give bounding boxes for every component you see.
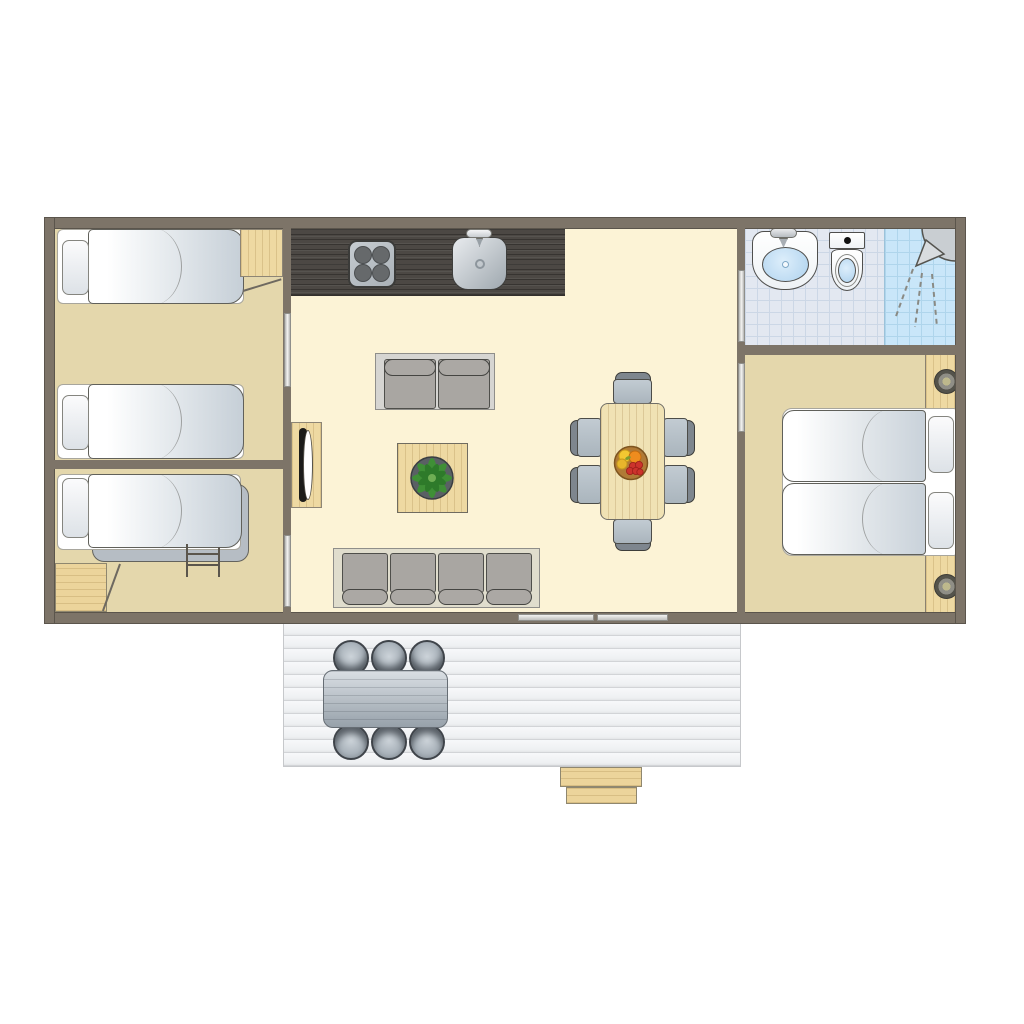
bed-pillow <box>62 478 89 538</box>
sofa-back-pillow <box>486 589 532 605</box>
potted-plant <box>405 451 460 506</box>
sofa-cushion <box>390 553 436 593</box>
toilet-cistern <box>829 232 865 249</box>
double-bed-mattress <box>782 483 926 555</box>
bed-pillow <box>928 416 954 473</box>
sofa-back-pillow <box>384 359 436 376</box>
four-seat-sofa <box>333 548 540 608</box>
sliding-door-bedroom-left-bottom <box>284 535 291 607</box>
sink-faucet <box>466 229 492 238</box>
fruit-bowl <box>613 445 649 481</box>
stove-burner <box>354 264 372 282</box>
stove-burner <box>372 264 390 282</box>
deck-step-upper <box>560 767 642 787</box>
sofa-back-pillow <box>438 359 490 376</box>
bunk-bed-duvet <box>88 474 242 548</box>
double-bed-mattress <box>782 410 926 482</box>
patio-sliding-door-panel <box>518 614 594 621</box>
sliding-door-bathroom <box>738 270 745 342</box>
stove <box>348 240 396 288</box>
floor-plan-canvas <box>0 0 1024 1024</box>
wall-between-left-bedrooms <box>45 460 291 469</box>
wardrobe <box>291 422 322 508</box>
wall-exterior-bottom <box>45 613 965 623</box>
bed-pillow <box>928 492 954 549</box>
wall-exterior-top <box>45 218 965 228</box>
single-bed-duvet <box>88 384 244 459</box>
dining-chair <box>577 418 602 457</box>
wardrobe-door-open <box>303 430 313 500</box>
sofa-cushion <box>342 553 388 593</box>
stove-burner <box>354 246 372 264</box>
sofa-cushion <box>486 553 532 593</box>
kitchen-counter <box>291 228 565 296</box>
toilet-button <box>844 237 851 244</box>
sliding-door-bedroom-right <box>738 363 745 432</box>
dining-chair <box>663 465 688 504</box>
dining-chair <box>663 418 688 457</box>
dining-chair <box>613 379 652 404</box>
basin-faucet <box>770 228 797 238</box>
single-bed-duvet <box>88 229 244 304</box>
toilet-water <box>838 258 856 283</box>
bed-pillow <box>62 240 89 295</box>
two-seat-sofa <box>375 353 495 410</box>
outdoor-chair <box>333 724 369 760</box>
bedroom-cabinet <box>240 229 283 277</box>
bedroom-cabinet <box>55 563 107 612</box>
outdoor-chair <box>371 724 407 760</box>
toilet-bowl <box>831 249 863 291</box>
dining-chair <box>577 465 602 504</box>
sink-drain <box>475 259 485 269</box>
deck-step-lower <box>566 787 637 804</box>
basin-drain <box>782 261 789 268</box>
sofa-cushion <box>438 553 484 593</box>
sofa-back-pillow <box>438 589 484 605</box>
stove-burner <box>372 246 390 264</box>
washbasin-bowl <box>762 247 809 282</box>
sliding-door-bedroom-left-top <box>284 313 291 387</box>
outdoor-chair <box>409 724 445 760</box>
bed-pillow <box>62 395 89 450</box>
dining-chair <box>613 519 652 544</box>
outdoor-table <box>323 670 448 728</box>
wall-exterior-right <box>956 218 965 623</box>
shower-head <box>895 227 956 342</box>
sofa-back-pillow <box>390 589 436 605</box>
wall-bathroom-bedroom <box>737 345 956 355</box>
patio-sliding-door-panel <box>597 614 668 621</box>
sofa-back-pillow <box>342 589 388 605</box>
bunk-ladder <box>186 544 220 577</box>
wall-exterior-left <box>45 218 54 623</box>
